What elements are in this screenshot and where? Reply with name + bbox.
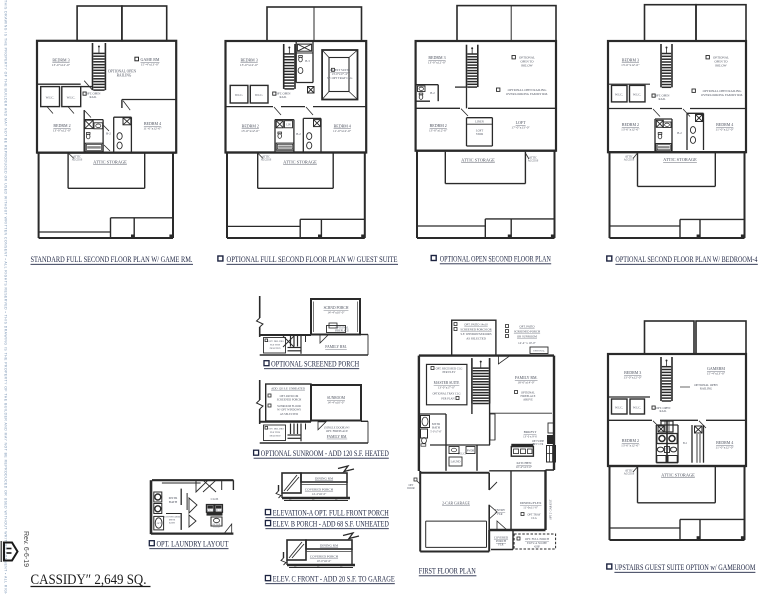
svg-text:13′-0″x12′-0″: 13′-0″x12′-0″ <box>53 129 72 133</box>
svg-text:10′-0″x6′-0″: 10′-0″x6′-0″ <box>317 559 333 563</box>
svg-text:BEDRM 3: BEDRM 3 <box>428 55 445 60</box>
svg-text:FLR: FLR <box>497 513 502 516</box>
svg-text:BEDRM 2: BEDRM 2 <box>622 438 639 443</box>
svg-text:ABOVE: ABOVE <box>523 399 533 402</box>
svg-text:B-3: B-3 <box>305 59 310 63</box>
svg-text:RAILING: RAILING <box>700 387 713 391</box>
svg-text:S.F. WINDOWS/DOORS: S.F. WINDOWS/DOORS <box>460 332 491 336</box>
svg-text:RAIL: RAIL <box>660 409 667 413</box>
svg-text:14′-4″x10′-0″: 14′-4″x10′-0″ <box>327 311 345 315</box>
svg-text:RAIL: RAIL <box>659 97 666 101</box>
svg-text:BATH: BATH <box>169 522 176 525</box>
svg-text:BEDRM 3: BEDRM 3 <box>624 370 641 375</box>
svg-text:BATH: BATH <box>432 426 441 430</box>
svg-text:SCREENED PORCH: SCREENED PORCH <box>277 398 301 401</box>
svg-text:FIRST FLOOR PLAN: FIRST FLOOR PLAN <box>419 567 476 576</box>
svg-text:BATH 3: BATH 3 <box>664 448 673 451</box>
svg-text:OPTIONAL OPEN SECOND FLOOR PLA: OPTIONAL OPEN SECOND FLOOR PLAN <box>440 255 551 264</box>
svg-text:OVERLOOKING FAMILY RM.: OVERLOOKING FAMILY RM. <box>506 92 548 96</box>
svg-text:CASSIDY″ 2,649 SQ.: CASSIDY″ 2,649 SQ. <box>31 572 147 588</box>
svg-text:CLG: CLG <box>531 517 537 520</box>
svg-text:W.I.C.: W.I.C. <box>633 406 641 410</box>
svg-text:10′-4″x13′-0″: 10′-4″x13′-0″ <box>516 465 533 469</box>
svg-text:SUNROOM: SUNROOM <box>327 396 346 400</box>
svg-text:OPT. LAUNDRY LAYOUT: OPT. LAUNDRY LAYOUT <box>156 540 228 549</box>
svg-text:GAME RM: GAME RM <box>140 57 159 62</box>
svg-text:B-2: B-2 <box>430 91 435 95</box>
svg-text:ATTIC STORAGE: ATTIC STORAGE <box>663 157 697 162</box>
svg-text:OPT. PATIO 14x10: OPT. PATIO 14x10 <box>464 323 488 327</box>
svg-text:W/ OPT WINDOWS: W/ OPT WINDOWS <box>277 408 301 411</box>
svg-text:DINING RM: DINING RM <box>315 477 333 481</box>
svg-text:11′-0″x12′-0″: 11′-0″x12′-0″ <box>333 129 352 133</box>
svg-text:STANDARD FULL SECOND FLOOR PLA: STANDARD FULL SECOND FLOOR PLAN W/ GAME … <box>31 255 193 264</box>
svg-text:BELOW: BELOW <box>715 64 726 68</box>
svg-text:2-CAR GARAGE: 2-CAR GARAGE <box>442 502 470 506</box>
svg-text:13′-0″x12′-0″: 13′-0″x12′-0″ <box>52 63 71 67</box>
svg-text:OPT. PATIO: OPT. PATIO <box>519 325 535 329</box>
svg-text:BEDRM 2: BEDRM 2 <box>622 122 639 127</box>
svg-text:ACCESS: ACCESS <box>624 473 635 476</box>
svg-text:LOFT: LOFT <box>516 120 527 125</box>
svg-text:PORCH: PORCH <box>496 539 507 543</box>
svg-text:ATTIC STORAGE: ATTIC STORAGE <box>93 160 127 165</box>
svg-text:ACCESS: ACCESS <box>528 160 539 163</box>
svg-text:BEV CTR: BEV CTR <box>533 443 544 446</box>
svg-text:13′-0″x17′-0″: 13′-0″x17′-0″ <box>438 385 456 389</box>
svg-text:13′-0″x12′-0″: 13′-0″x12′-0″ <box>240 63 259 67</box>
svg-text:PATIO: PATIO <box>214 526 220 529</box>
svg-text:15′-4″x13′-0″: 15′-4″x13′-0″ <box>707 372 726 376</box>
svg-text:14′-4″x10′-0″: 14′-4″x10′-0″ <box>327 401 345 405</box>
svg-text:13′-0″x12′-0″: 13′-0″x12′-0″ <box>241 129 260 133</box>
svg-text:OPT. FIREPLACE: OPT. FIREPLACE <box>326 429 348 433</box>
svg-text:STOR: STOR <box>476 132 483 136</box>
svg-text:W/ OPT TRAY CLG: W/ OPT TRAY CLG <box>327 76 353 80</box>
svg-text:14′-4″x6′-0″: 14′-4″x6′-0″ <box>312 492 328 496</box>
svg-text:OPTIONAL FULL SECOND FLOOR PLA: OPTIONAL FULL SECOND FLOOR PLAN W/ GUEST… <box>227 255 398 264</box>
svg-text:W.I.C.: W.I.C. <box>67 96 76 100</box>
svg-text:BATH: BATH <box>169 500 178 504</box>
svg-text:B-2: B-2 <box>677 131 682 135</box>
svg-text:SCREENED PORCH OR: SCREENED PORCH OR <box>460 328 491 332</box>
svg-text:OPT 2′ GAR EXT: OPT 2′ GAR EXT <box>550 499 553 520</box>
svg-text:LINEN: LINEN <box>475 120 485 124</box>
svg-text:DELETED: DELETED <box>270 434 281 437</box>
svg-text:ADD 120 S.F. UNHEATED: ADD 120 S.F. UNHEATED <box>271 387 306 391</box>
svg-text:13′-0″x12′-0″: 13′-0″x12′-0″ <box>621 444 640 448</box>
svg-text:DINING RM: DINING RM <box>320 544 338 548</box>
svg-text:PER ELEV: PER ELEV <box>443 371 456 374</box>
svg-text:SCREENED PORCH: SCREENED PORCH <box>514 330 541 334</box>
svg-text:OR SUNROOM: OR SUNROOM <box>517 335 537 339</box>
svg-text:FAMILY RM.: FAMILY RM. <box>515 375 538 380</box>
svg-text:RAILING: RAILING <box>117 74 132 78</box>
svg-text:ACCESS: ACCESS <box>624 159 635 162</box>
svg-text:BEDRM 2: BEDRM 2 <box>53 123 70 128</box>
svg-text:FIREPLACE: FIREPLACE <box>335 329 349 332</box>
svg-text:OPT CAB: OPT CAB <box>214 509 224 512</box>
svg-text:ACCESS: ACCESS <box>72 159 83 162</box>
svg-text:15′-4″x13′-0″: 15′-4″x13′-0″ <box>141 63 160 67</box>
svg-text:ELEVATION-A OPT. FULL FRONT PO: ELEVATION-A OPT. FULL FRONT PORCH <box>273 509 389 518</box>
svg-text:18′-0″x14′-0″: 18′-0″x14′-0″ <box>518 381 536 385</box>
svg-text:14′-4″ x 10′-0″: 14′-4″ x 10′-0″ <box>518 341 537 345</box>
svg-text:BEDRM 3: BEDRM 3 <box>240 58 257 63</box>
svg-text:GAMERM: GAMERM <box>707 366 725 371</box>
svg-text:13′-0″x12′-0″: 13′-0″x12′-0″ <box>621 63 640 67</box>
svg-text:DELETED: DELETED <box>270 347 281 350</box>
svg-text:42SF: 42SF <box>534 545 540 549</box>
svg-text:13′-0″x12′-0″: 13′-0″x12′-0″ <box>428 61 447 65</box>
svg-text:11′-0″x12′-0″: 11′-0″x12′-0″ <box>143 127 162 131</box>
svg-text:BEDRM 2: BEDRM 2 <box>430 123 447 128</box>
svg-text:ATTIC STORAGE: ATTIC STORAGE <box>283 160 317 165</box>
svg-text:BEDRM 3: BEDRM 3 <box>622 58 639 63</box>
svg-text:SCRND PORCH: SCRND PORCH <box>324 306 349 310</box>
svg-text:AS SELECTED: AS SELECTED <box>280 413 298 416</box>
svg-text:OPT: OPT <box>157 523 162 525</box>
svg-text:BEDRM 4: BEDRM 4 <box>144 121 161 126</box>
svg-text:UPSTAIRS GUEST SUITE OPTION w/: UPSTAIRS GUEST SUITE OPTION w/ GAMEROOM <box>614 563 755 572</box>
svg-text:THIS DRAWING IS THE PROPERTY O: THIS DRAWING IS THE PROPERTY OF THE BUIL… <box>4 0 8 594</box>
svg-text:OPTIONAL SCREENED PORCH: OPTIONAL SCREENED PORCH <box>271 360 359 369</box>
svg-text:FLR: FLR <box>498 544 503 547</box>
svg-text:B-2: B-2 <box>296 132 301 136</box>
svg-text:5′-0″x7′-6″: 5′-0″x7′-6″ <box>430 430 442 433</box>
svg-text:W.I.C.: W.I.C. <box>615 406 623 410</box>
svg-text:W.I.C.: W.I.C. <box>235 93 243 97</box>
svg-text:DOOR: DOOR <box>407 487 415 490</box>
svg-text:13′-0 x 9′-0: 13′-0 x 9′-0 <box>523 434 537 438</box>
svg-text:Rev. 6-6-19: Rev. 6-6-19 <box>22 531 29 567</box>
svg-text:13′-0″x12′-0″: 13′-0″x12′-0″ <box>621 128 640 132</box>
svg-text:BEDRM 4: BEDRM 4 <box>716 440 733 445</box>
svg-text:11′-0x11′-0″: 11′-0x11′-0″ <box>523 505 539 509</box>
svg-text:17′-0″x13′-0″: 17′-0″x13′-0″ <box>511 126 530 130</box>
svg-text:OPTIONAL TRAY CLG: OPTIONAL TRAY CLG <box>432 393 460 396</box>
svg-text:RAIL: RAIL <box>280 95 287 99</box>
svg-text:W.I.C.: W.I.C. <box>255 93 263 97</box>
svg-text:RAIL: RAIL <box>90 95 97 99</box>
svg-text:ACCESS: ACCESS <box>261 159 272 162</box>
svg-text:BEDRM 2: BEDRM 2 <box>242 124 259 129</box>
svg-text:11′-0″x12′-0″: 11′-0″x12′-0″ <box>716 446 735 450</box>
svg-text:W.I.C.: W.I.C. <box>46 96 55 100</box>
svg-text:CLOS: CLOS <box>211 497 219 501</box>
svg-text:LIN: LIN <box>286 124 290 127</box>
svg-text:OPTIONAL SECOND FLOOR PLAN W/: OPTIONAL SECOND FLOOR PLAN W/ BEDROOM-4 <box>615 255 757 264</box>
svg-text:W.I.C.: W.I.C. <box>633 93 641 97</box>
svg-text:PWDR: PWDR <box>467 449 475 452</box>
svg-text:ELEV. C FRONT - ADD 20 S.F. TO: ELEV. C FRONT - ADD 20 S.F. TO GARAGE <box>273 575 395 584</box>
svg-text:OPTIONAL SUNROOM - ADD 120 S.F: OPTIONAL SUNROOM - ADD 120 S.F. HEATED <box>261 449 389 458</box>
svg-text:BEDRM 4: BEDRM 4 <box>334 124 351 129</box>
svg-text:LAUND: LAUND <box>451 461 461 464</box>
svg-text:13′-0″x12′-0″: 13′-0″x12′-0″ <box>623 376 642 380</box>
svg-text:BEDRM 3: BEDRM 3 <box>52 58 69 63</box>
svg-text:W.I.C.: W.I.C. <box>615 93 623 97</box>
svg-text:AS SELECTED: AS SELECTED <box>466 337 486 341</box>
svg-text:ATTIC STORAGE: ATTIC STORAGE <box>461 158 495 163</box>
svg-text:OVERLOOKING FAMILY RM.: OVERLOOKING FAMILY RM. <box>701 93 743 97</box>
svg-text:FAMILY RM.: FAMILY RM. <box>327 435 348 439</box>
svg-text:11′-0″x12′-0″: 11′-0″x12′-0″ <box>716 128 735 132</box>
svg-text:ATTIC STORAGE: ATTIC STORAGE <box>661 473 695 478</box>
svg-text:FAMILY RM.: FAMILY RM. <box>325 345 347 349</box>
svg-text:PER PLAN: PER PLAN <box>441 398 454 401</box>
svg-text:OPTIONAL: OPTIONAL <box>533 350 545 353</box>
svg-text:BEDRM 4: BEDRM 4 <box>716 122 733 127</box>
svg-text:BELOW: BELOW <box>521 64 532 68</box>
svg-text:13′-0″x12′-0″: 13′-0″x12′-0″ <box>429 129 448 133</box>
svg-text:B-2: B-2 <box>106 132 111 136</box>
svg-text:ELEV. B PORCH - ADD 68 S.F. UN: ELEV. B PORCH - ADD 68 S.F. UNHEATED <box>273 520 389 529</box>
